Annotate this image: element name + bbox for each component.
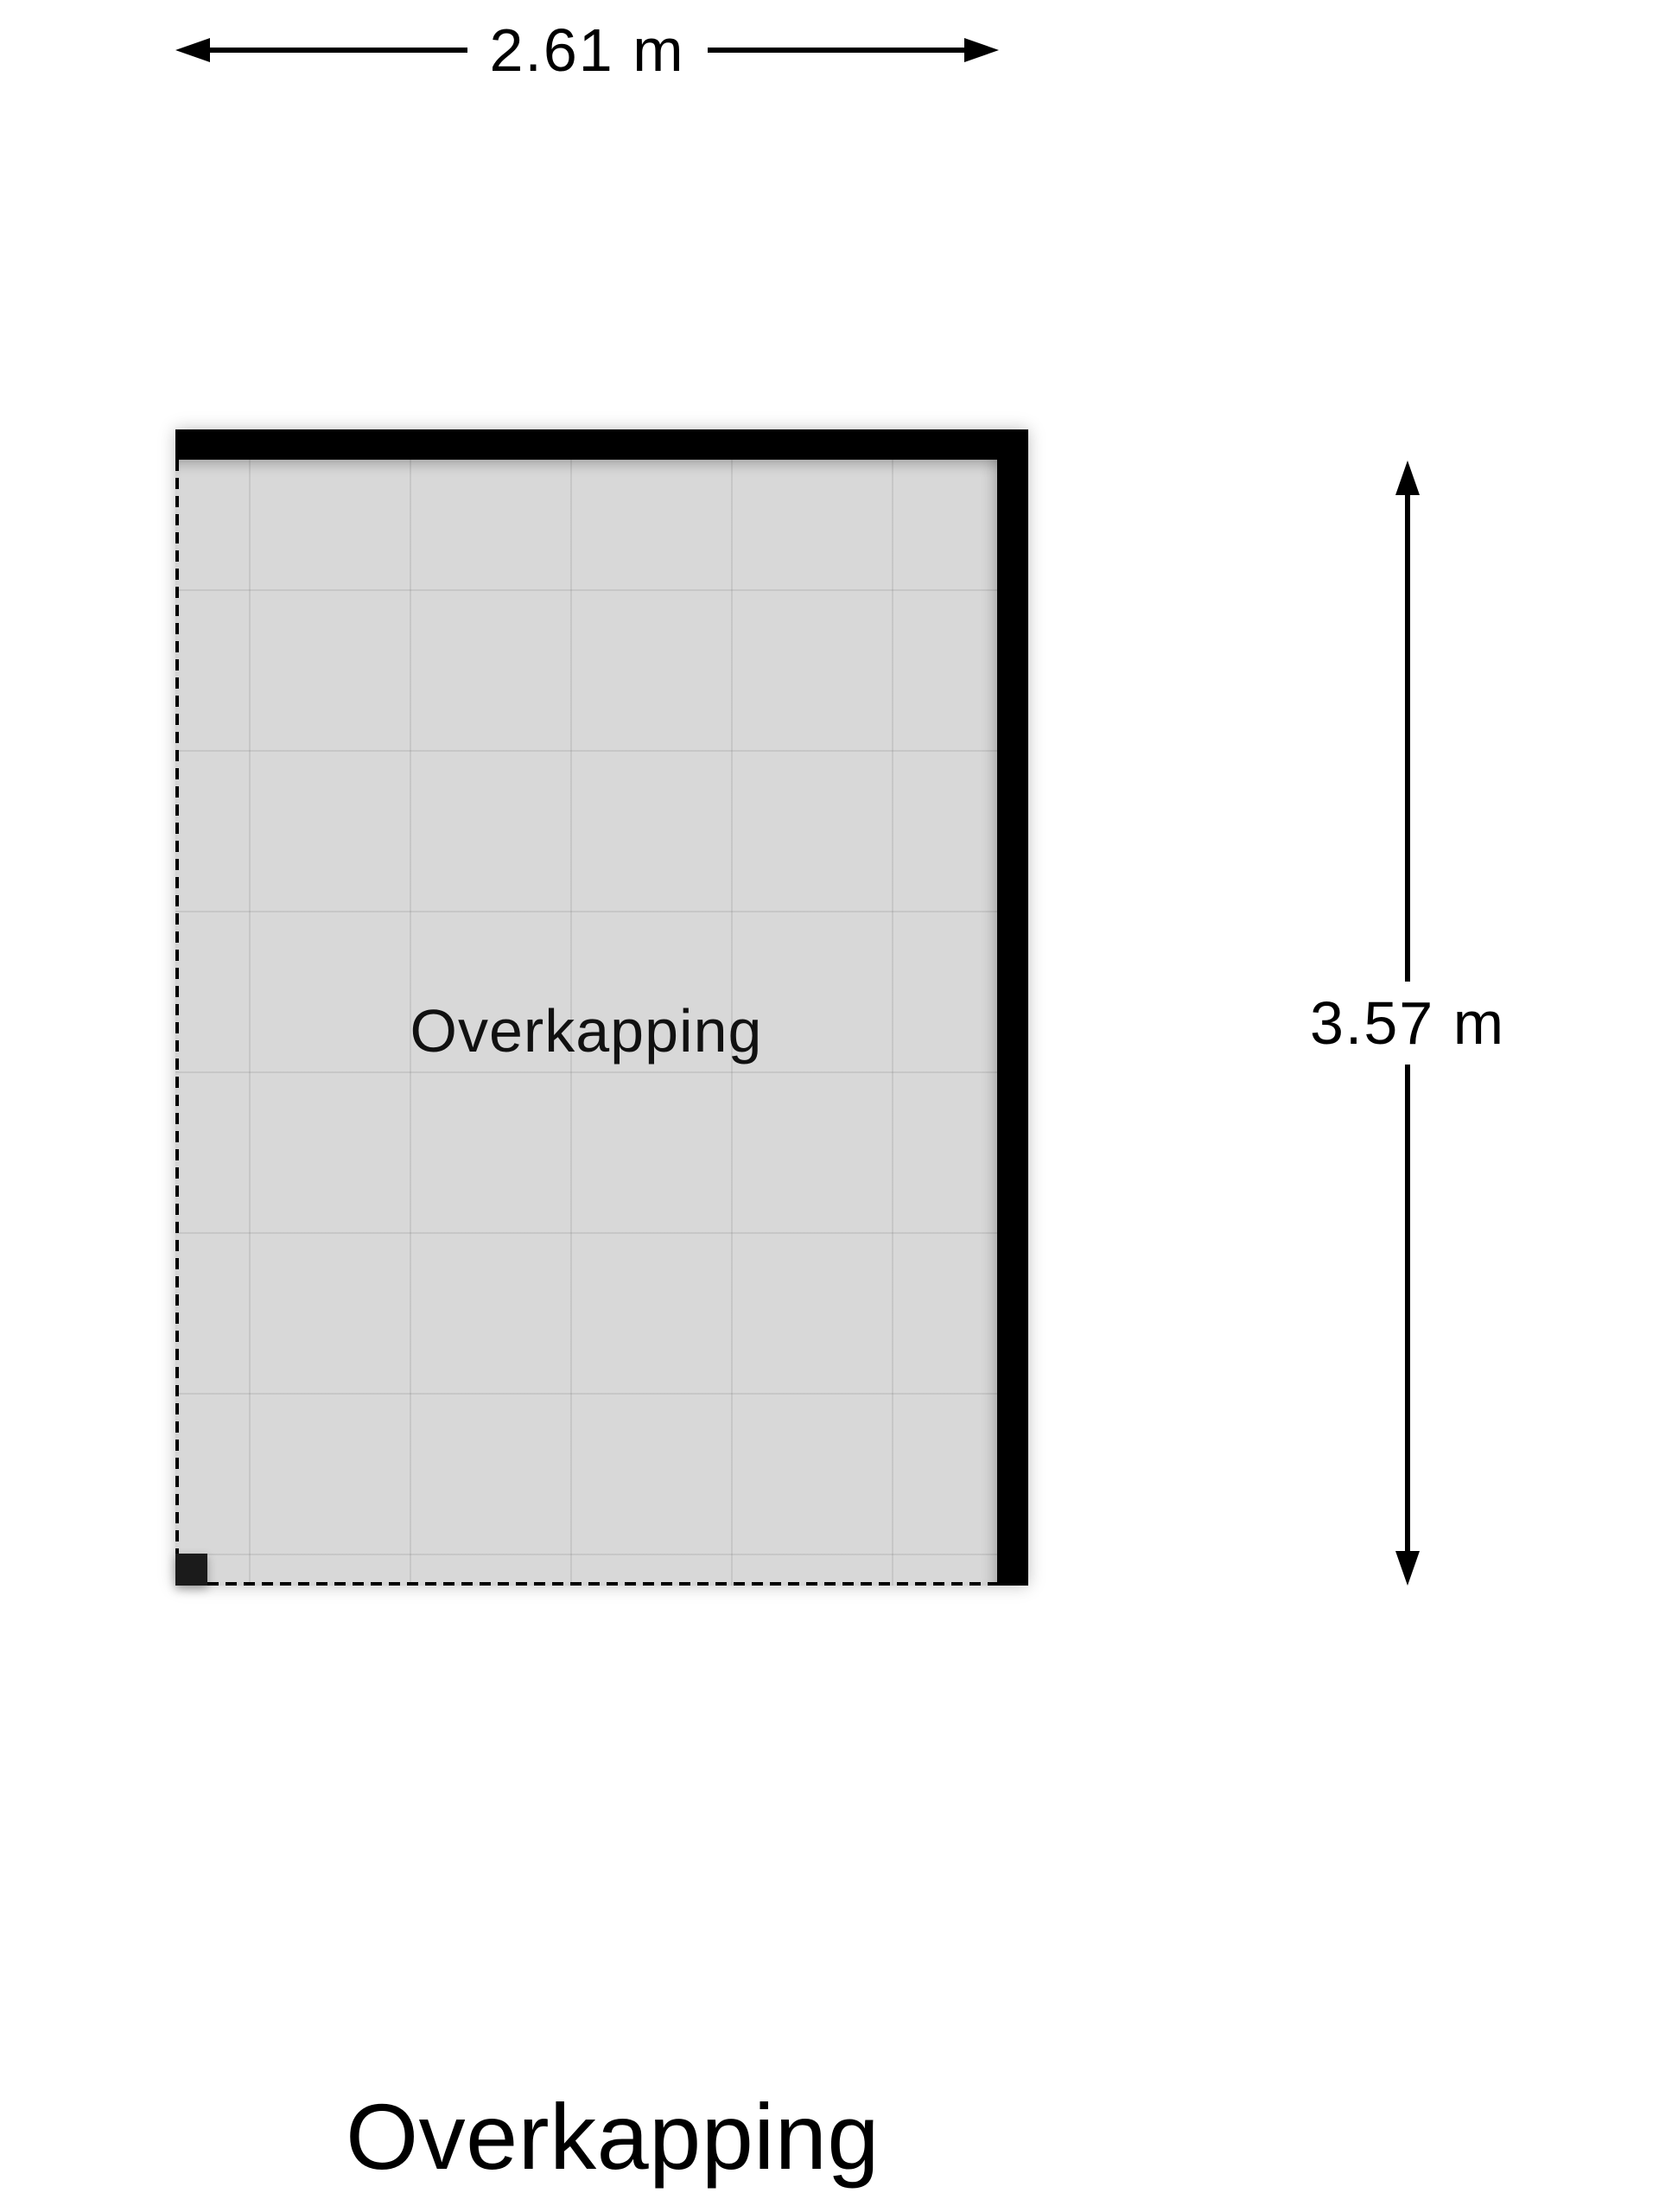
width-dimension: 2.61 m [175, 16, 999, 85]
dimension-line [708, 48, 965, 53]
width-dimension-label: 2.61 m [467, 16, 708, 85]
corner-post [175, 1554, 207, 1586]
room-label: Overkapping [175, 993, 997, 1069]
open-edge-bottom [207, 1582, 997, 1586]
arrow-right-icon [964, 38, 999, 62]
wall-top [175, 429, 1028, 460]
dimension-line [210, 48, 467, 53]
plan-caption: Overkapping [0, 2081, 1225, 2193]
height-dimension-label: 3.57 m [1291, 982, 1524, 1065]
arrow-left-icon [175, 38, 210, 62]
floor-plan: Overkapping [175, 429, 1028, 1586]
height-dimension: 3.57 m [1382, 461, 1433, 1586]
floor-plan-page: 2.61 m Overkapping 3.57 m Overkapping [0, 0, 1659, 2212]
wall-right [997, 429, 1028, 1586]
